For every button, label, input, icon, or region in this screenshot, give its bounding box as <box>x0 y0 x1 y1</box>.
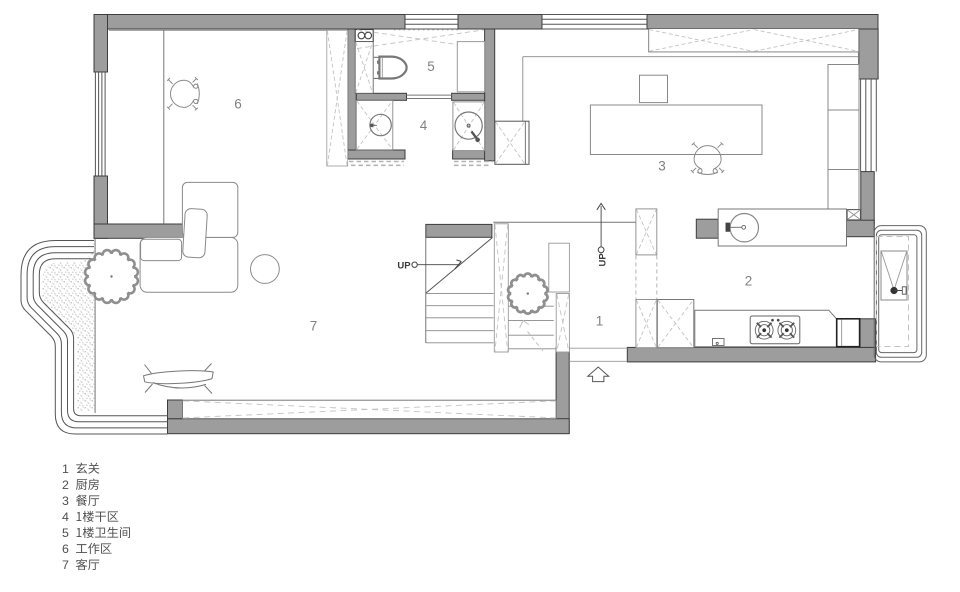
svg-text:1: 1 <box>596 314 604 329</box>
svg-text:4: 4 <box>420 118 428 133</box>
svg-text:7: 7 <box>62 558 69 572</box>
svg-text:4: 4 <box>62 510 69 524</box>
svg-text:2: 2 <box>62 478 69 492</box>
svg-text:1: 1 <box>62 462 69 476</box>
svg-text:UP: UP <box>598 253 609 267</box>
svg-text:7: 7 <box>310 319 318 334</box>
svg-text:5: 5 <box>427 59 435 74</box>
svg-text:6: 6 <box>62 542 69 556</box>
svg-text:UP: UP <box>397 261 411 272</box>
svg-text:5: 5 <box>62 526 69 540</box>
svg-text:3: 3 <box>658 159 666 174</box>
svg-text:2: 2 <box>745 274 753 289</box>
svg-text:6: 6 <box>234 97 242 112</box>
svg-text:3: 3 <box>62 494 69 508</box>
